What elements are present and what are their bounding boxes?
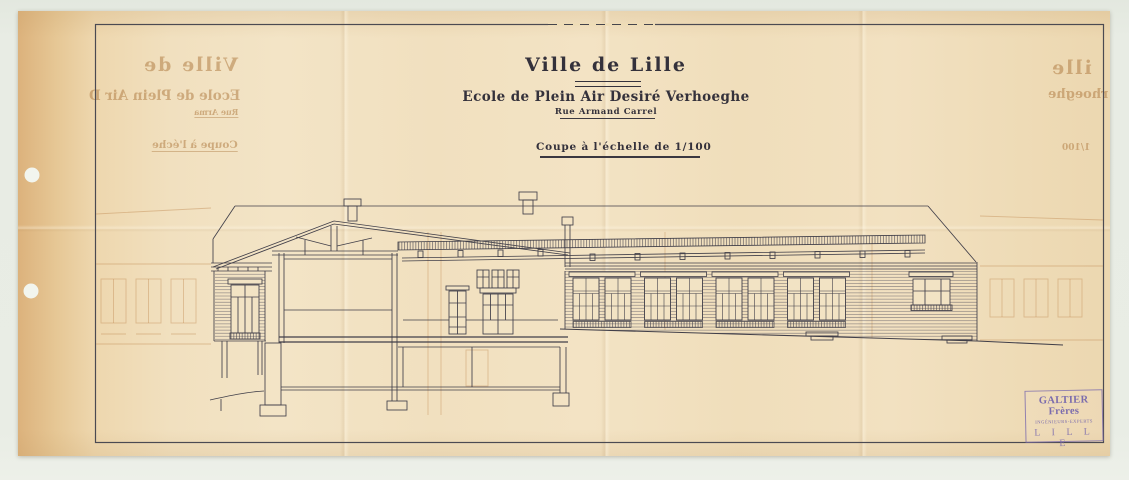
bleedthrough-right-subtitle: iré Verhoeghe (1048, 87, 1108, 102)
fold-crease-horizontal (18, 225, 1110, 232)
bleedthrough-left: Ville de Ecole de Plein Air D Rue Arma C… (18, 50, 240, 162)
bleedthrough-left-street: Rue Arma (194, 107, 238, 118)
street-underline (560, 118, 655, 119)
street-name: Rue Armand Carrel (506, 107, 706, 117)
bleedthrough-left-title: Ville de (142, 54, 238, 76)
subtitle-school-name: Ecole de Plein Air Desiré Verhoeghe (446, 89, 766, 105)
bleedthrough-right-scale: 1/100 (1062, 143, 1090, 153)
scale-caption: Coupe à l'échelle de 1/100 (536, 141, 706, 153)
stamp-name: GALTIER Frères (1026, 394, 1102, 418)
bleedthrough-left-subtitle: Ecole de Plein Air D (89, 88, 240, 104)
bleedthrough-right-title: ille (1050, 57, 1092, 79)
title-ville-de-lille: Ville de Lille (456, 54, 756, 76)
fold-crease-vertical-2 (601, 11, 610, 456)
bleedthrough-left-caption: Coupe à l'éche (152, 139, 238, 152)
stamp-city: L I L L E (1026, 426, 1102, 450)
stamp-role: INGÉNIEURS-EXPERTS (1026, 418, 1102, 425)
fold-crease-vertical-1 (340, 11, 349, 456)
scale-caption-underline (540, 156, 700, 158)
title-double-underline (575, 81, 641, 87)
fold-crease-vertical-3 (858, 11, 867, 456)
scanned-architectural-sheet: Ville de Ecole de Plein Air D Rue Arma C… (0, 0, 1129, 480)
bleedthrough-right: ille iré Verhoeghe 1/100 (1048, 55, 1108, 160)
surveyor-stamp: GALTIER Frères INGÉNIEURS-EXPERTS L I L … (1024, 389, 1103, 443)
